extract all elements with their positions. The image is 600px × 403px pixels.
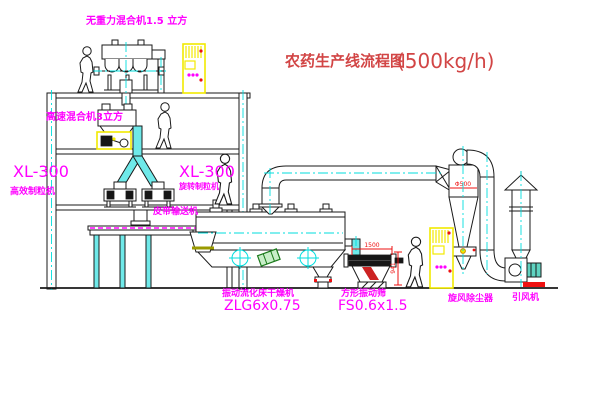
label-granulator-mid-name: 旋转制粒机 <box>178 181 219 191</box>
label-granulator-left-model: XL-300 <box>13 162 69 181</box>
granulator-right <box>142 182 174 207</box>
worker-ground <box>406 237 423 287</box>
indicator-light <box>199 78 202 81</box>
process-flow-drawing: Φ500 <box>0 0 600 403</box>
dryer-discharge <box>313 267 333 277</box>
indicator-light <box>448 269 451 272</box>
conveyor-leg <box>146 235 151 288</box>
label-high-speed-mixer: 高速混合机3立方 <box>46 110 123 123</box>
label-screen-model: FS0.6x1.5 <box>338 298 408 314</box>
fan-motor <box>527 263 541 277</box>
page-title-capacity: (500kg/h) <box>397 49 494 73</box>
label-granulator-left-name: 高效制粒机 <box>10 185 55 197</box>
conveyor-leg <box>94 235 99 288</box>
riser-pipe <box>133 126 142 156</box>
label-fan: 引风机 <box>512 291 539 303</box>
control-cabinet-1 <box>183 44 205 93</box>
label-belt-conveyor: 皮带输送机 <box>152 205 198 217</box>
worker-top-floor <box>78 47 93 92</box>
vibrating-screen: 1500 941 <box>344 242 403 288</box>
belt-conveyor <box>88 226 203 288</box>
drawing-svg: Φ500 <box>0 0 600 403</box>
label-dryer-model: ZLG6x0.75 <box>224 298 301 314</box>
gravity-free-mixer <box>92 40 166 110</box>
indicator-light <box>199 49 202 52</box>
induced-draft-fan <box>505 258 545 287</box>
conveyor-leg <box>120 235 125 288</box>
svg-text:1500: 1500 <box>364 242 379 249</box>
fan-base <box>523 282 545 287</box>
label-gravity-mixer: 无重力混合机1.5 立方 <box>85 14 187 27</box>
discharge-chute <box>131 210 150 225</box>
page-title-cn: 农药生产线流程图 <box>284 52 405 70</box>
label-cyclone: 旋风除尘器 <box>447 292 494 304</box>
control-cabinet-2 <box>430 228 453 288</box>
indicator-light <box>447 231 450 234</box>
worker-floor-2 <box>156 103 171 148</box>
svg-text:941: 941 <box>390 262 397 274</box>
granulator-left <box>104 182 136 207</box>
label-granulator-mid-model: XL-300 <box>179 162 235 181</box>
floor-slab-mid <box>51 149 246 154</box>
floor-slab-top <box>47 93 250 98</box>
